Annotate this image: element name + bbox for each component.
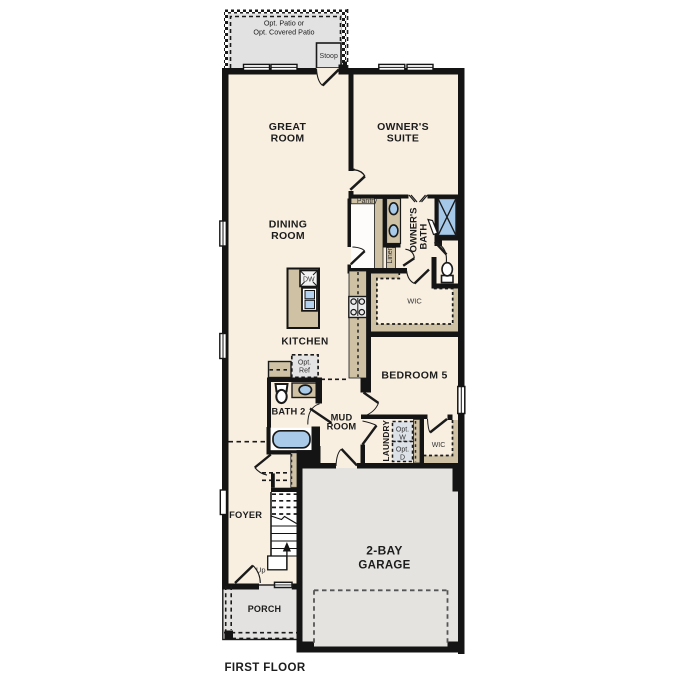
svg-text:Linen: Linen bbox=[387, 246, 394, 263]
svg-text:Ref: Ref bbox=[299, 367, 310, 374]
svg-text:FIRST FLOOR: FIRST FLOOR bbox=[224, 662, 305, 674]
svg-text:FOYER: FOYER bbox=[229, 510, 262, 520]
svg-text:Opt.: Opt. bbox=[396, 447, 409, 454]
svg-text:Opt.: Opt. bbox=[298, 359, 311, 366]
svg-text:Opt.: Opt. bbox=[396, 427, 409, 434]
svg-text:DINING: DINING bbox=[269, 219, 308, 231]
svg-text:Opt. Patio or: Opt. Patio or bbox=[264, 19, 305, 28]
svg-text:2-BAY: 2-BAY bbox=[366, 544, 402, 558]
svg-text:DW: DW bbox=[303, 277, 315, 284]
svg-text:Stoop: Stoop bbox=[320, 53, 338, 60]
svg-text:WIC: WIC bbox=[407, 297, 422, 306]
svg-text:D: D bbox=[400, 455, 405, 462]
svg-text:Up: Up bbox=[256, 565, 266, 574]
svg-text:ROOM: ROOM bbox=[271, 230, 305, 242]
svg-text:Pantry: Pantry bbox=[357, 198, 378, 205]
svg-text:PORCH: PORCH bbox=[248, 604, 282, 614]
svg-text:WIC: WIC bbox=[432, 442, 446, 449]
svg-text:LAUNDRY: LAUNDRY bbox=[381, 420, 391, 462]
svg-text:OWNER'S: OWNER'S bbox=[377, 121, 429, 133]
svg-text:GREAT: GREAT bbox=[269, 121, 307, 133]
svg-text:W: W bbox=[399, 435, 406, 442]
svg-text:Opt. Covered Patio: Opt. Covered Patio bbox=[253, 28, 314, 37]
svg-text:ROOM: ROOM bbox=[271, 133, 305, 145]
svg-text:BATH 2: BATH 2 bbox=[271, 406, 305, 416]
svg-text:SUITE: SUITE bbox=[387, 133, 419, 145]
svg-text:GARAGE: GARAGE bbox=[358, 560, 410, 572]
svg-text:KITCHEN: KITCHEN bbox=[281, 337, 328, 348]
svg-text:ROOM: ROOM bbox=[327, 422, 357, 432]
svg-text:BATH: BATH bbox=[419, 224, 430, 250]
svg-text:BEDROOM 5: BEDROOM 5 bbox=[381, 370, 447, 382]
